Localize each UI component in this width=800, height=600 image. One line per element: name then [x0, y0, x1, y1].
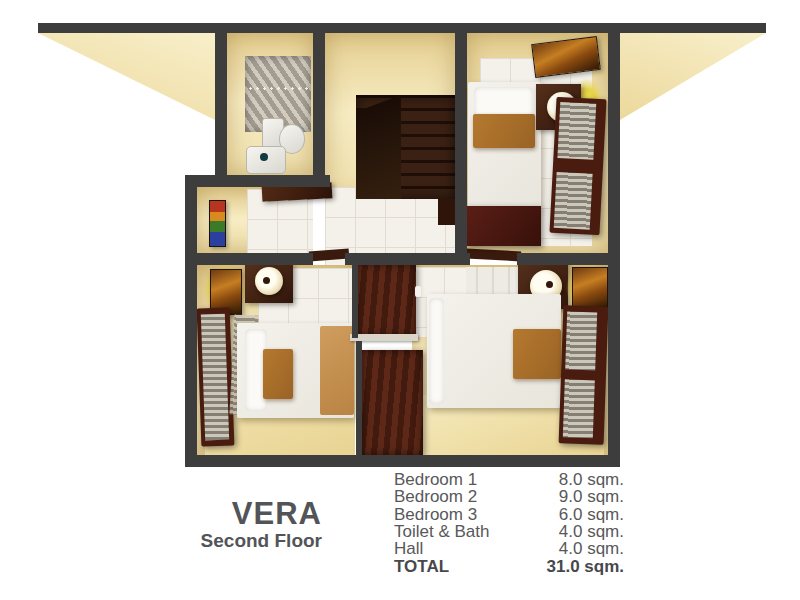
bedroom2-wardrobe-louver-bottom [554, 172, 593, 230]
staircase-winder-steps [356, 95, 401, 199]
bedroom1-wardrobe [559, 305, 609, 444]
wall-under-toilet [185, 175, 330, 187]
legend-label: Bedroom 2 [394, 488, 477, 505]
bedroom2-bed [468, 82, 541, 208]
area-legend: Bedroom 1 8.0 sqm. Bedroom 2 9.0 sqm. Be… [394, 471, 624, 576]
roof-slope-right [620, 33, 766, 120]
divider-ledge [350, 334, 418, 341]
divider-wardrobe-upper [356, 264, 416, 336]
bedroom2-blanket [473, 114, 535, 148]
bedroom1-wardrobe-louver-bottom [563, 379, 595, 438]
legend-value: 8.0 sqm. [559, 471, 624, 488]
legend-value: 4.0 sqm. [559, 540, 624, 557]
legend-value: 9.0 sqm. [559, 488, 624, 505]
wall-outer-bottom [185, 455, 620, 467]
wall-top-ridge [38, 23, 766, 33]
bedroom1-headboard [429, 298, 444, 404]
divider-wardrobe-lower [362, 350, 423, 455]
bedroom1-door-leaf [466, 249, 521, 262]
shower-curtain-rings-icon [247, 85, 309, 93]
bedroom1-bed [427, 294, 561, 408]
bedroom1-blanket [513, 329, 561, 379]
bedroom1-lamp-finial [546, 281, 553, 288]
divider-wall-upper [352, 264, 358, 338]
legend-row-total: TOTAL 31.0 sqm. [394, 558, 624, 575]
bedroom1-artwork [572, 267, 608, 309]
plan-subtitle: Second Floor [150, 530, 322, 551]
legend-value: 31.0 sqm. [547, 558, 625, 575]
stair-newel-post [438, 199, 455, 225]
bedroom3-wardrobe-louver [201, 314, 229, 441]
faucet-icon [260, 153, 268, 161]
hall-artwork [209, 200, 226, 247]
plan-title-block: VERA Second Floor [150, 498, 322, 551]
bedroom3-blanket [263, 349, 293, 399]
bedroom3-wardrobe [197, 307, 235, 446]
legend-row-hall: Hall 4.0 sqm. [394, 540, 624, 557]
wall-toilet-left [215, 33, 227, 187]
legend-label: Toilet & Bath [394, 523, 489, 540]
bedroom2-pillow [474, 87, 533, 117]
legend-row-bedroom3: Bedroom 3 6.0 sqm. [394, 506, 624, 523]
bedroom1-wardrobe-louver-top [565, 311, 597, 370]
bedroom1-light-switch [415, 286, 421, 297]
bedroom3-lamp [255, 267, 283, 295]
legend-label: TOTAL [394, 558, 449, 575]
legend-label: Bedroom 3 [394, 506, 477, 523]
wall-stairs-bedroom2 [455, 33, 467, 265]
legend-label: Hall [394, 540, 423, 557]
bedroom3-bed [237, 323, 354, 418]
wall-outer-left [185, 175, 197, 467]
sink [246, 146, 286, 174]
bedroom2-footboard-cabinet [466, 206, 541, 246]
bedroom2-wardrobe [549, 97, 606, 235]
bedroom3-lamp-finial [263, 277, 270, 284]
bedroom2-wardrobe-louver-top [557, 102, 596, 160]
wall-outer-right [608, 33, 620, 467]
legend-row-bedroom1: Bedroom 1 8.0 sqm. [394, 471, 624, 488]
wall-toilet-right [313, 33, 325, 187]
divider-wall-lower [356, 341, 362, 455]
legend-label: Bedroom 1 [394, 471, 477, 488]
legend-value: 4.0 sqm. [559, 523, 624, 540]
wall-hall-bedroom3 [185, 253, 313, 265]
plan-title: VERA [150, 498, 322, 530]
bedroom3-mattress-tan [320, 326, 354, 415]
wall-corridor-bedrooms [345, 253, 470, 265]
legend-row-bedroom2: Bedroom 2 9.0 sqm. [394, 488, 624, 505]
floor-plan-page: VERA Second Floor Bedroom 1 8.0 sqm. Bed… [0, 0, 800, 600]
wall-bedroom2-bedroom1 [517, 253, 608, 265]
legend-value: 6.0 sqm. [559, 506, 624, 523]
roof-slope-left [38, 33, 215, 120]
legend-row-toilet-bath: Toilet & Bath 4.0 sqm. [394, 523, 624, 540]
